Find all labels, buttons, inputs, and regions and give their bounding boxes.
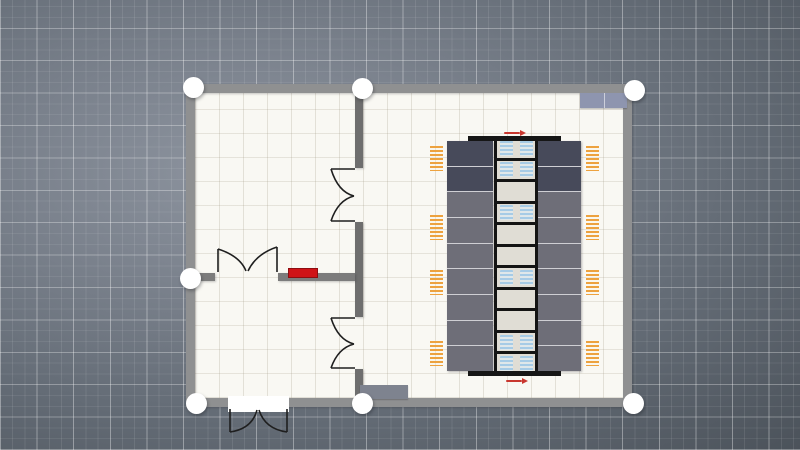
rack-column-left-cabinet [447,244,493,269]
handle-bottom-left[interactable] [186,393,207,414]
double-door-lower-divider[interactable] [331,318,355,368]
perforated-vent-right [520,270,533,285]
aisle-floor-tile [497,161,535,180]
double-door-inner-rooms[interactable] [218,247,277,272]
aisle-floor-tile [497,268,535,287]
handle-middle-left[interactable] [180,268,201,289]
perforated-vent-right [520,162,533,177]
rack-column-right-cabinet [538,321,581,346]
cable-tray-mark-right [586,341,599,366]
cable-tray-mark-left [430,341,443,366]
cable-tray-mark-right [586,146,599,171]
floor-plan-canvas [0,0,800,450]
handle-bottom-right[interactable] [623,393,644,414]
aisle-floor-tile [497,290,535,309]
aisle-floor-tile [497,204,535,223]
double-door-upper-divider[interactable] [331,169,355,221]
perforated-vent-right [520,335,533,350]
handle-top-right[interactable] [624,80,645,101]
perforated-vent-left [500,141,513,156]
cold-aisle-tile-column[interactable] [494,136,538,376]
cable-tray-mark-right [586,270,599,295]
perforated-vent-left [500,205,513,220]
rack-column-left-cabinet [447,269,493,294]
airflow-arrow-top-head [520,130,526,136]
crac-unit-top-right[interactable] [580,93,627,108]
handle-top-left[interactable] [183,77,204,98]
rack-column-right-cabinet [538,244,581,269]
rack-column-left-cabinet [447,295,493,320]
rack-column-right-cabinet [538,218,581,243]
rack-column-left[interactable] [447,141,493,371]
aisle-floor-tile [497,247,535,266]
rack-column-left-cabinet [447,346,493,371]
rack-column-right[interactable] [538,141,581,371]
cable-tray-mark-left [430,215,443,240]
cable-tray-mark-left [430,146,443,171]
rack-column-right-cabinet [538,141,581,166]
rack-row-top-rail [468,136,561,141]
double-door-exterior[interactable] [230,409,287,432]
rack-column-right-cabinet [538,346,581,371]
red-console-table[interactable] [288,268,318,278]
perforated-vent-left [500,162,513,177]
perforated-vent-right [520,141,533,156]
airflow-arrow-top [504,132,520,134]
rack-column-left-cabinet [447,321,493,346]
aisle-floor-tile [497,225,535,244]
perforated-vent-right [520,356,533,371]
airflow-arrow-bottom-head [522,378,528,384]
rack-column-left-cabinet [447,167,493,192]
handle-top-middle[interactable] [352,78,373,99]
rack-column-right-cabinet [538,269,581,294]
rack-column-right-cabinet [538,295,581,320]
handle-bottom-middle[interactable] [352,393,373,414]
aisle-floor-tile [497,311,535,330]
aisle-floor-tile [497,182,535,201]
rack-column-right-cabinet [538,167,581,192]
rack-column-left-cabinet [447,192,493,217]
door-swing-layer [0,0,800,450]
perforated-vent-left [500,335,513,350]
crac-unit-top-right-divider [604,93,605,108]
cable-tray-mark-left [430,270,443,295]
rack-row-bottom-rail [468,371,561,376]
rack-column-left-cabinet [447,218,493,243]
perforated-vent-left [500,270,513,285]
aisle-floor-tile [497,333,535,352]
rack-column-right-cabinet [538,192,581,217]
cable-tray-mark-right [586,215,599,240]
aisle-floor-tile [497,139,535,158]
perforated-vent-left [500,356,513,371]
rack-column-left-cabinet [447,141,493,166]
perforated-vent-right [520,205,533,220]
airflow-arrow-bottom [506,380,522,382]
